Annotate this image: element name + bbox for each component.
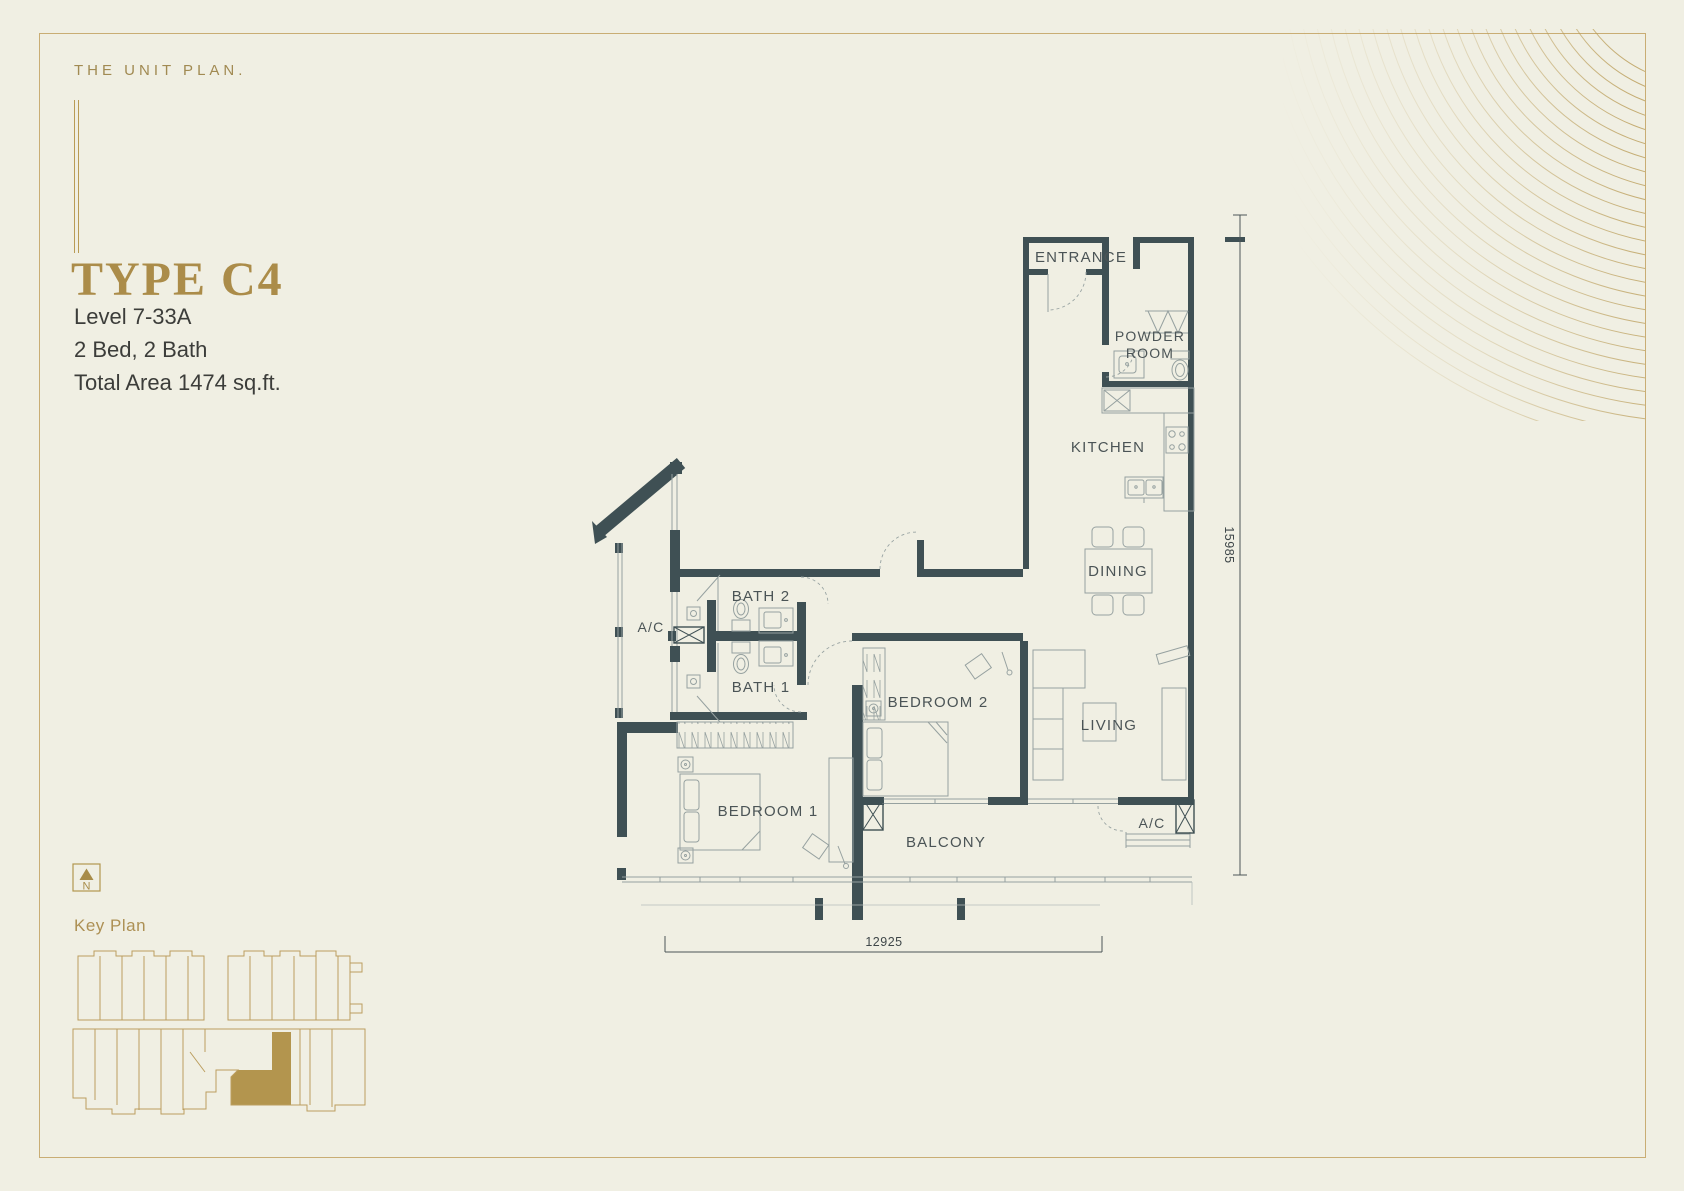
key-plan-highlighted-unit (231, 1032, 291, 1105)
room-label-powder-2: ROOM (1126, 345, 1174, 361)
floor-plan: ENTRANCE POWDER ROOM KITCHEN DINING LIVI… (0, 0, 1684, 1191)
room-label-kitchen: KITCHEN (1071, 439, 1145, 456)
room-label-living: LIVING (1081, 717, 1137, 734)
room-label-bath2: BATH 2 (732, 588, 791, 605)
room-label-entrance: ENTRANCE (1035, 249, 1127, 266)
north-label: N (83, 881, 91, 893)
bedroom1-furniture (677, 722, 853, 869)
room-label-balcony: BALCONY (906, 834, 986, 851)
room-label-dining: DINING (1088, 563, 1148, 580)
unit-plan-page: THE UNIT PLAN. TYPE C4 Level 7-33A 2 Bed… (0, 0, 1684, 1191)
room-label-ac-corner: A/C (1139, 815, 1166, 831)
key-plan-drawing (73, 951, 365, 1114)
door-swings (774, 272, 1134, 831)
north-arrow: N (73, 864, 100, 893)
room-label-bedroom1: BEDROOM 1 (718, 803, 819, 820)
dimension-horizontal: 12925 (865, 935, 902, 949)
bedroom2-furniture (863, 648, 1012, 796)
room-label-bedroom2: BEDROOM 2 (888, 694, 989, 711)
room-label-bath1: BATH 1 (732, 679, 791, 696)
dimension-vertical: 15985 (1222, 526, 1236, 563)
room-label-powder-1: POWDER (1115, 328, 1185, 344)
north-arrow-icon (80, 869, 94, 881)
living-furniture (1033, 646, 1190, 780)
room-label-ac-side: A/C (638, 619, 665, 635)
